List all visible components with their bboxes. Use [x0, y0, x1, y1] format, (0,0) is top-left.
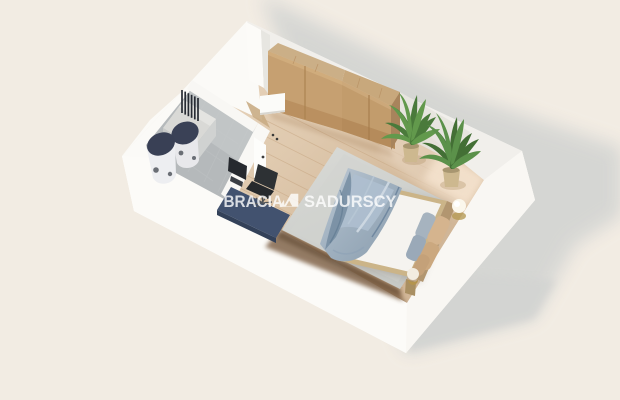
svg-text:BRACIA: BRACIA: [224, 192, 284, 211]
svg-text:SADURSCY: SADURSCY: [304, 192, 396, 211]
